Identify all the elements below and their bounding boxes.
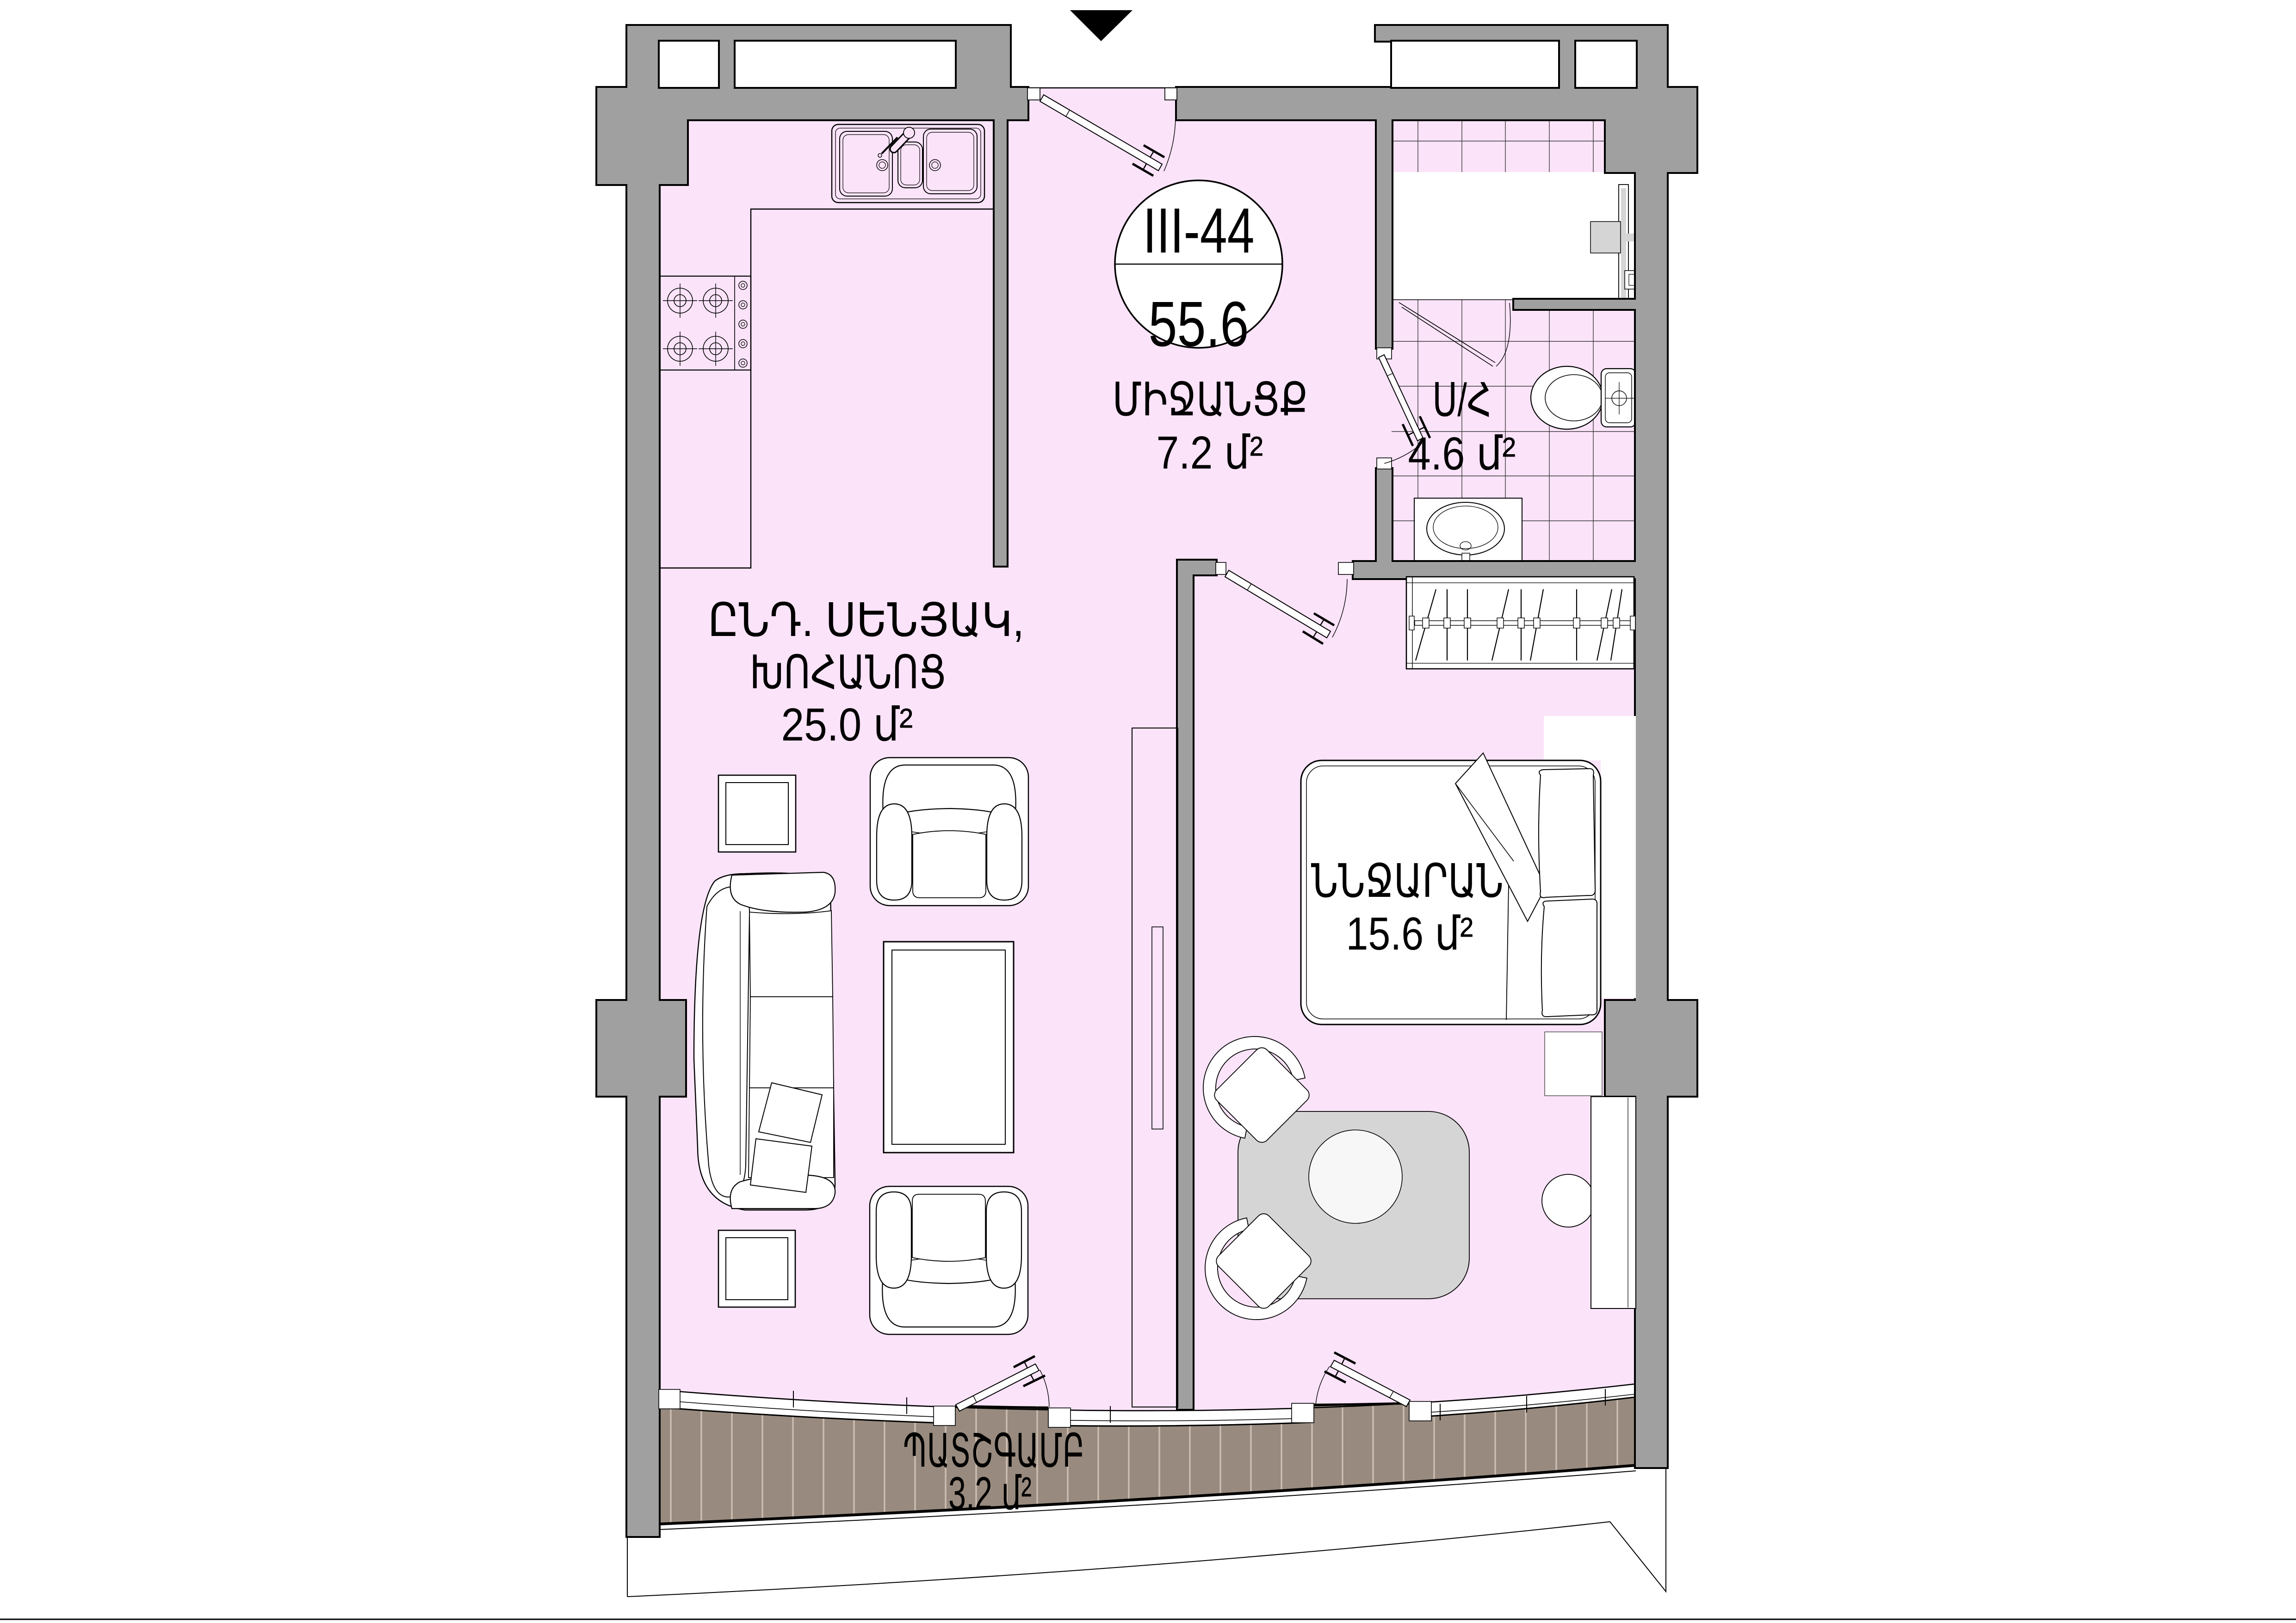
svg-text:Ս/Հ: Ս/Հ <box>1432 374 1491 426</box>
svg-text:15.6 մ²: 15.6 մ² <box>1346 908 1473 960</box>
svg-text:55.6: 55.6 <box>1149 289 1249 360</box>
svg-text:III-44: III-44 <box>1143 195 1255 266</box>
svg-text:ՆՆՋԱՐԱՆ: ՆՆՋԱՐԱՆ <box>1311 855 1504 907</box>
svg-text:ՄԻՋԱՆՑՔ: ՄԻՋԱՆՑՔ <box>1113 374 1308 426</box>
svg-text:25.0 մ²: 25.0 մ² <box>781 699 913 751</box>
svg-text:ԸՆԴ. ՍԵՆՅԱԿ,: ԸՆԴ. ՍԵՆՅԱԿ, <box>708 594 1024 646</box>
svg-text:4.6 մ²: 4.6 մ² <box>1408 428 1516 480</box>
svg-text:7.2 մ²: 7.2 մ² <box>1157 427 1263 479</box>
svg-text:3.2 մ²: 3.2 մ² <box>948 1468 1032 1519</box>
svg-text:ԽՈՀԱՆՈՑ: ԽՈՀԱՆՈՑ <box>750 647 947 698</box>
